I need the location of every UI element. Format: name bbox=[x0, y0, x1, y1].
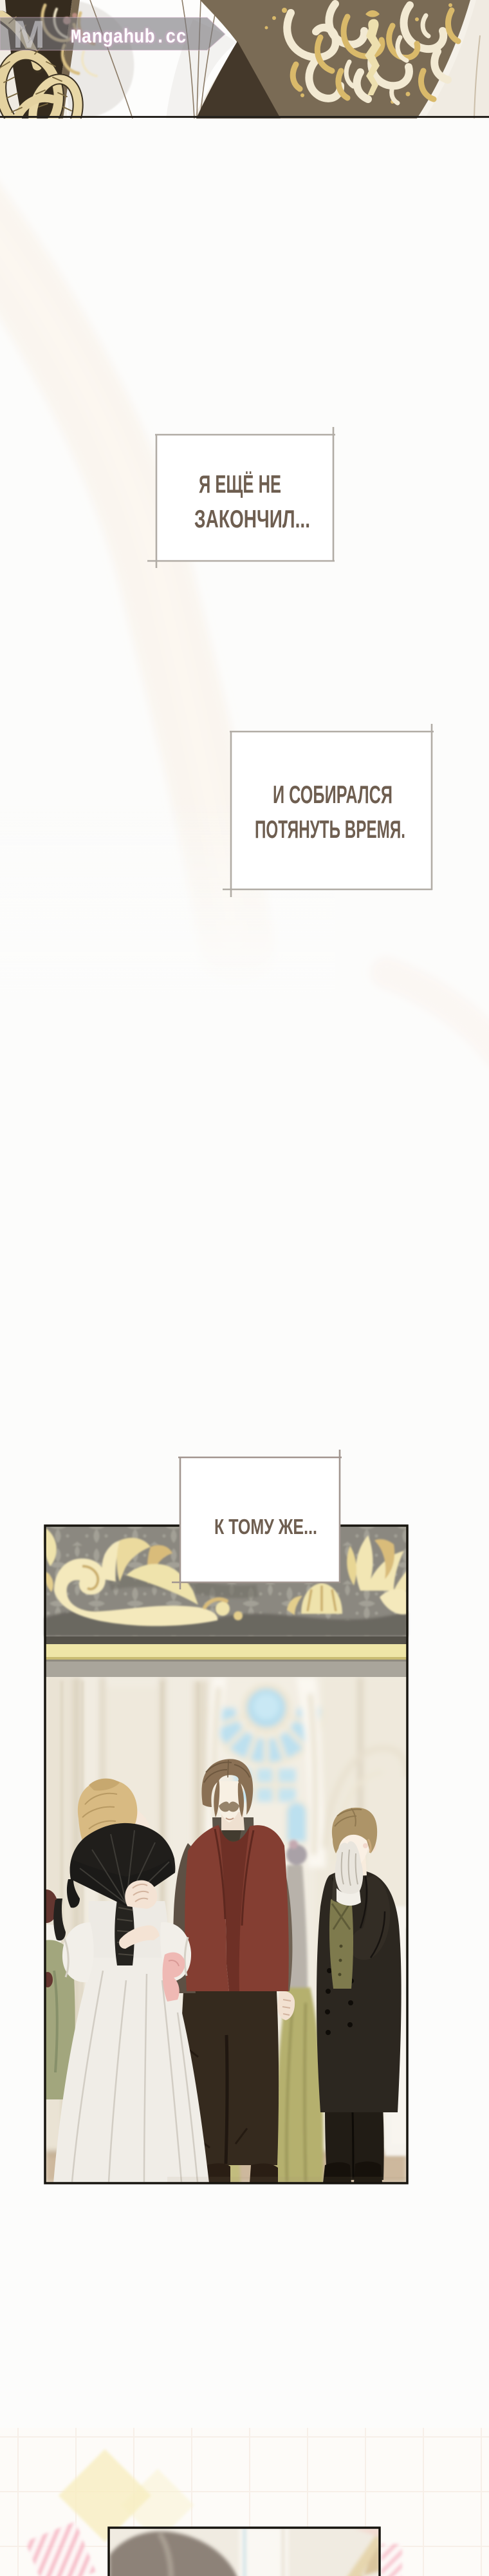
svg-text:Mangahub.cc: Mangahub.cc bbox=[71, 26, 187, 49]
svg-text:И СОБИРАЛСЯ: И СОБИРАЛСЯ bbox=[273, 781, 392, 809]
svg-text:Я ЕЩЁ НЕ: Я ЕЩЁ НЕ bbox=[199, 471, 281, 498]
svg-text:К ТОМУ ЖЕ...: К ТОМУ ЖЕ... bbox=[214, 1515, 317, 1539]
svg-text:M: M bbox=[13, 13, 45, 56]
svg-text:ПОТЯНУТЬ ВРЕМЯ.: ПОТЯНУТЬ ВРЕМЯ. bbox=[255, 816, 405, 844]
svg-text:ЗАКОНЧИЛ...: ЗАКОНЧИЛ... bbox=[194, 506, 310, 533]
